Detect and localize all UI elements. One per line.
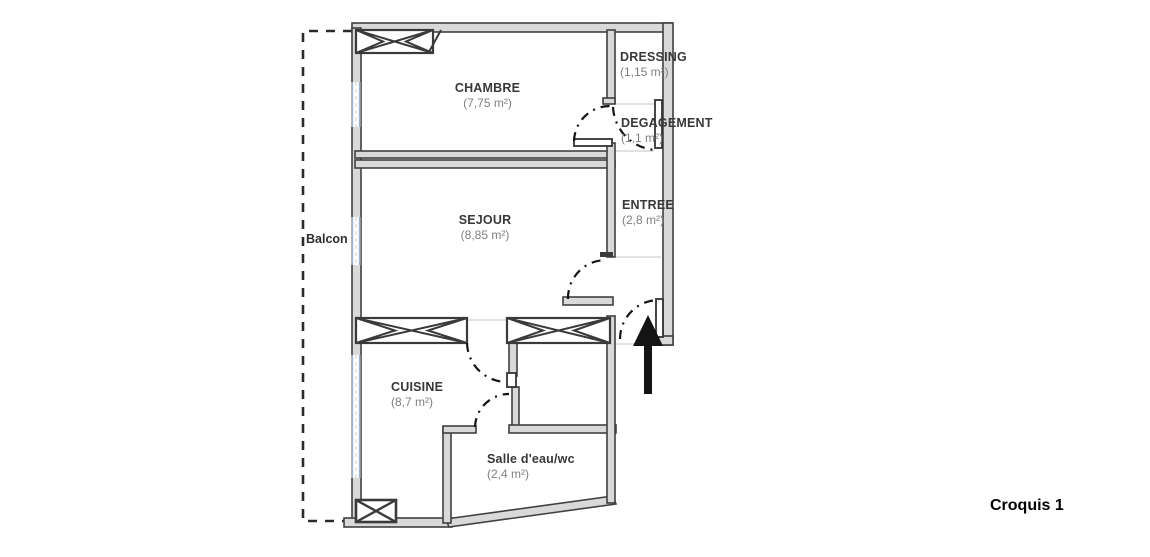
cuisine-door-arc bbox=[467, 343, 506, 382]
room-label-chambre: CHAMBRE (7,75 m²) bbox=[420, 81, 555, 111]
sejour-door-arc bbox=[568, 260, 606, 299]
page-title: Croquis 1 bbox=[990, 497, 1064, 515]
room-name: DRESSING bbox=[620, 50, 687, 65]
wall-sejour-right bbox=[607, 143, 615, 257]
window-bottom-left bbox=[356, 500, 396, 522]
window-sejour-left bbox=[356, 318, 467, 343]
floor-plan-drawing bbox=[0, 0, 1150, 557]
room-area: (8,85 m²) bbox=[420, 228, 550, 243]
room-area: (2,4 m²) bbox=[487, 467, 575, 482]
sejour-door-sill bbox=[600, 252, 613, 257]
wall-salle-eau-left bbox=[443, 427, 451, 523]
entrance-door-leaf bbox=[656, 299, 663, 337]
wall-dressing-left-foot bbox=[603, 98, 615, 104]
room-name: CUISINE bbox=[391, 380, 443, 395]
wall-bottom-slanted bbox=[446, 496, 616, 527]
room-label-cuisine: CUISINE (8,7 m²) bbox=[391, 380, 443, 410]
wall-shower-bottom bbox=[509, 425, 616, 433]
wall-salle-eau-top bbox=[443, 426, 476, 433]
room-label-degagement: DEGAGEMENT (1,1 m²) bbox=[621, 116, 713, 146]
wall-dressing-left bbox=[607, 30, 615, 103]
floor-plan-page: CHAMBRE (7,75 m²) DRESSING (1,15 m²) DEG… bbox=[0, 0, 1150, 557]
room-area: (2,8 m²) bbox=[622, 213, 674, 228]
glazing-cuisine bbox=[352, 355, 361, 478]
balcony-outline bbox=[303, 31, 352, 521]
wall-sejour-top bbox=[355, 160, 615, 168]
window-sejour-right bbox=[507, 318, 610, 343]
room-name: ENTREE bbox=[622, 198, 674, 213]
room-area: (7,75 m²) bbox=[420, 96, 555, 111]
room-label-sejour: SEJOUR (8,85 m²) bbox=[420, 213, 550, 243]
chambre-door-arc bbox=[574, 106, 610, 141]
room-name: DEGAGEMENT bbox=[621, 116, 713, 131]
room-label-entree: ENTREE (2,8 m²) bbox=[622, 198, 674, 228]
balcony-label: Balcon bbox=[306, 232, 348, 246]
wall-shower-left bbox=[509, 343, 517, 376]
wall-shower-left-stub bbox=[512, 387, 519, 428]
room-label-salle-eau: Salle d'eau/wc (2,4 m²) bbox=[487, 452, 575, 482]
room-name: Salle d'eau/wc bbox=[487, 452, 575, 467]
room-area: (1,1 m²) bbox=[621, 131, 713, 146]
room-label-dressing: DRESSING (1,15 m²) bbox=[620, 50, 687, 80]
chambre-door-leaf bbox=[574, 139, 612, 146]
glazing-sejour bbox=[352, 217, 361, 265]
wall-chambre-bottom bbox=[355, 151, 613, 158]
room-area: (8,7 m²) bbox=[391, 395, 443, 410]
salle-eau-door-leaf bbox=[507, 373, 516, 387]
window-top bbox=[356, 30, 441, 53]
glazing-chambre bbox=[352, 82, 361, 127]
salle-eau-door-arc bbox=[475, 394, 509, 427]
wall-sejour-door-jamb bbox=[563, 297, 613, 305]
room-area: (1,15 m²) bbox=[620, 65, 687, 80]
room-name: CHAMBRE bbox=[420, 81, 555, 96]
room-name: SEJOUR bbox=[420, 213, 550, 228]
